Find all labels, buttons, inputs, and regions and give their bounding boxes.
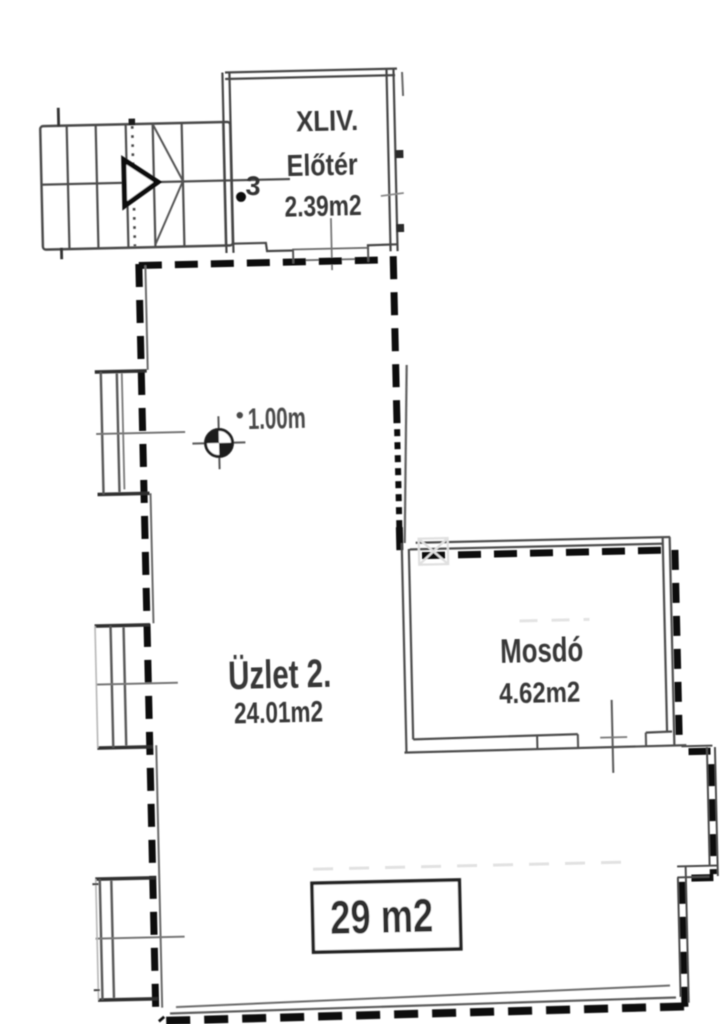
svg-text:29 m2: 29 m2 — [330, 888, 434, 943]
svg-text:Mosdó: Mosdó — [500, 631, 584, 671]
svg-text:Előtér: Előtér — [286, 147, 358, 184]
svg-text:1.00m: 1.00m — [247, 402, 306, 436]
svg-text:2.39m2: 2.39m2 — [284, 190, 362, 224]
svg-text:XLIV.: XLIV. — [296, 105, 359, 138]
svg-text:24.01m2: 24.01m2 — [234, 695, 324, 730]
svg-text:3: 3 — [245, 171, 261, 202]
svg-text:4.62m2: 4.62m2 — [499, 677, 581, 711]
svg-text:Üzlet 2.: Üzlet 2. — [228, 651, 332, 698]
